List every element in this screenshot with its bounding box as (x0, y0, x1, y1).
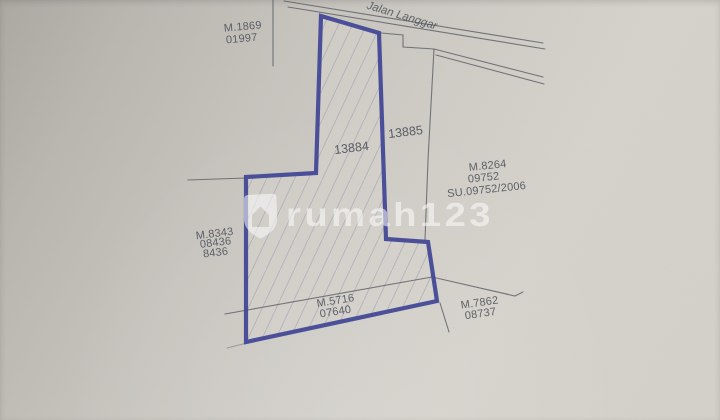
survey-map-drawing: Jalan Langgar M.1869 01997 13884 13885 M… (0, 0, 720, 420)
cadastral-scan-photo: Jalan Langgar M.1869 01997 13884 13885 M… (0, 0, 720, 420)
paper-grain-overlay (0, 0, 720, 420)
